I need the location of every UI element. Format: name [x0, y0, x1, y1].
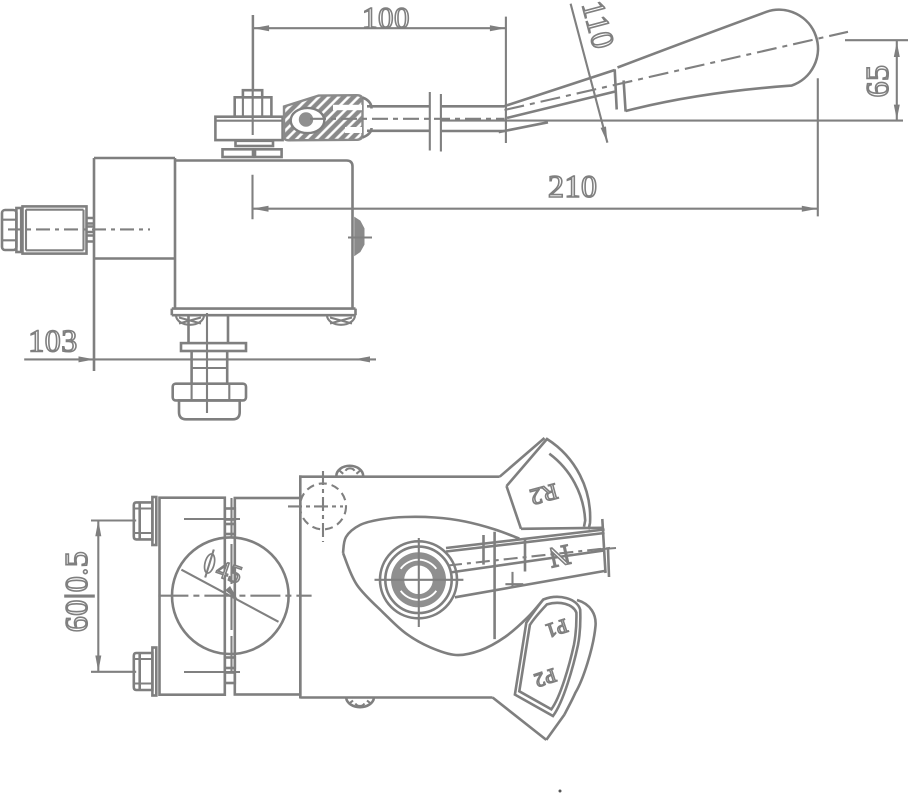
- svg-text:210: 210: [548, 168, 598, 204]
- svg-text:P1: P1: [542, 614, 570, 642]
- svg-text:R2: R2: [527, 479, 560, 510]
- svg-text:103: 103: [28, 322, 78, 358]
- svg-text:60|0.5: 60|0.5: [58, 551, 94, 632]
- svg-text:45: 45: [213, 556, 246, 590]
- svg-text:N: N: [546, 538, 574, 574]
- svg-text:65: 65: [859, 65, 895, 98]
- svg-text:P2: P2: [531, 664, 559, 692]
- svg-text:100: 100: [362, 0, 410, 35]
